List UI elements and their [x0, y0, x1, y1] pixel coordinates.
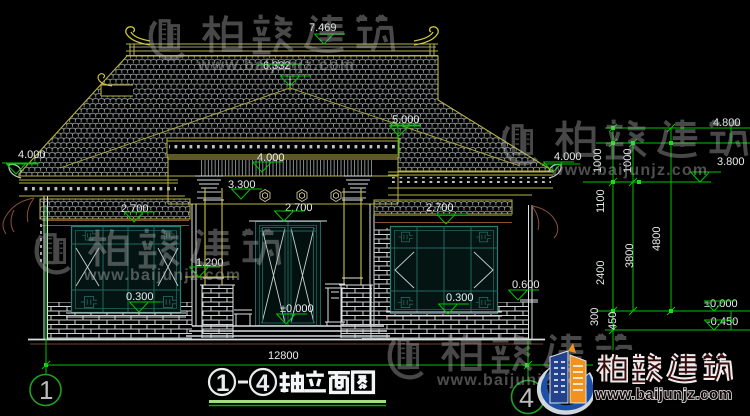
svg-text:www.baijunjz.com: www.baijunjz.com	[594, 386, 732, 403]
svg-text:www.baijunjz.com: www.baijunjz.com	[83, 267, 241, 284]
svg-text:www.baijunjz.com: www.baijunjz.com	[197, 57, 355, 74]
svg-text:4: 4	[256, 370, 270, 397]
svg-text:2.700: 2.700	[426, 202, 454, 214]
svg-text:1: 1	[39, 375, 53, 405]
svg-text:2400: 2400	[595, 261, 607, 285]
svg-text:12800: 12800	[268, 350, 299, 362]
svg-text:1: 1	[216, 370, 229, 397]
svg-text:3.800: 3.800	[717, 156, 745, 168]
svg-text:450: 450	[607, 312, 619, 330]
svg-text:-0.450: -0.450	[707, 316, 738, 328]
svg-text:5.000: 5.000	[392, 114, 420, 126]
svg-text:2.700: 2.700	[285, 202, 313, 214]
svg-text:±0.000: ±0.000	[280, 303, 314, 315]
svg-text:1100: 1100	[595, 189, 607, 213]
svg-text:0.600: 0.600	[512, 279, 540, 291]
svg-text:3800: 3800	[624, 244, 636, 268]
svg-text:4.000: 4.000	[18, 149, 46, 161]
svg-text:4800: 4800	[651, 227, 663, 251]
svg-text:0.300: 0.300	[126, 291, 154, 303]
svg-text:0.300: 0.300	[446, 292, 474, 304]
svg-text:300: 300	[589, 308, 601, 326]
svg-text:www.baijunjz.com: www.baijunjz.com	[550, 162, 708, 179]
